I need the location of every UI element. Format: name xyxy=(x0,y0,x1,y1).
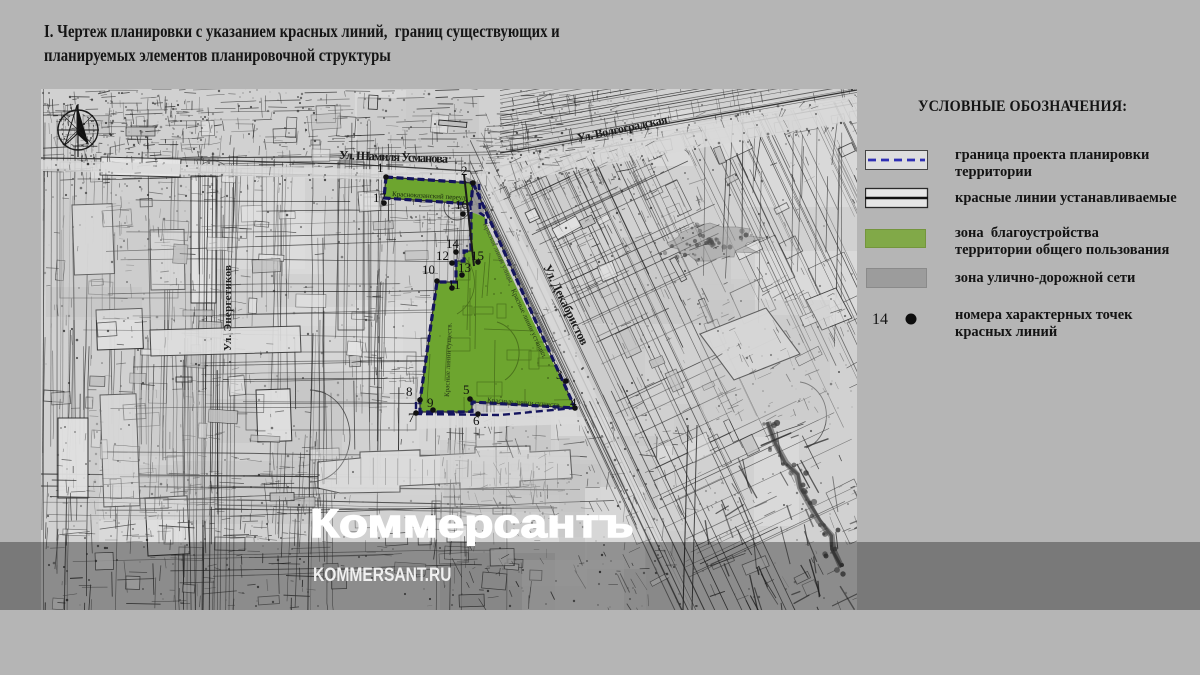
svg-text:4: 4 xyxy=(570,395,577,410)
svg-text:5: 5 xyxy=(463,382,470,397)
svg-text:8: 8 xyxy=(406,384,413,399)
svg-text:7: 7 xyxy=(408,410,415,425)
svg-text:13: 13 xyxy=(458,260,471,275)
svg-text:Ул. Энергетиков: Ул. Энергетиков xyxy=(222,265,234,351)
svg-text:11: 11 xyxy=(448,277,461,292)
svg-text:6: 6 xyxy=(473,413,480,428)
svg-text:10: 10 xyxy=(422,262,435,277)
svg-text:3: 3 xyxy=(556,367,563,382)
svg-text:14: 14 xyxy=(872,311,888,328)
svg-text:15: 15 xyxy=(471,248,484,263)
svg-text:17: 17 xyxy=(373,190,387,205)
svg-text:9: 9 xyxy=(427,395,434,410)
svg-text:2: 2 xyxy=(461,163,468,178)
svg-text:14: 14 xyxy=(446,236,460,251)
